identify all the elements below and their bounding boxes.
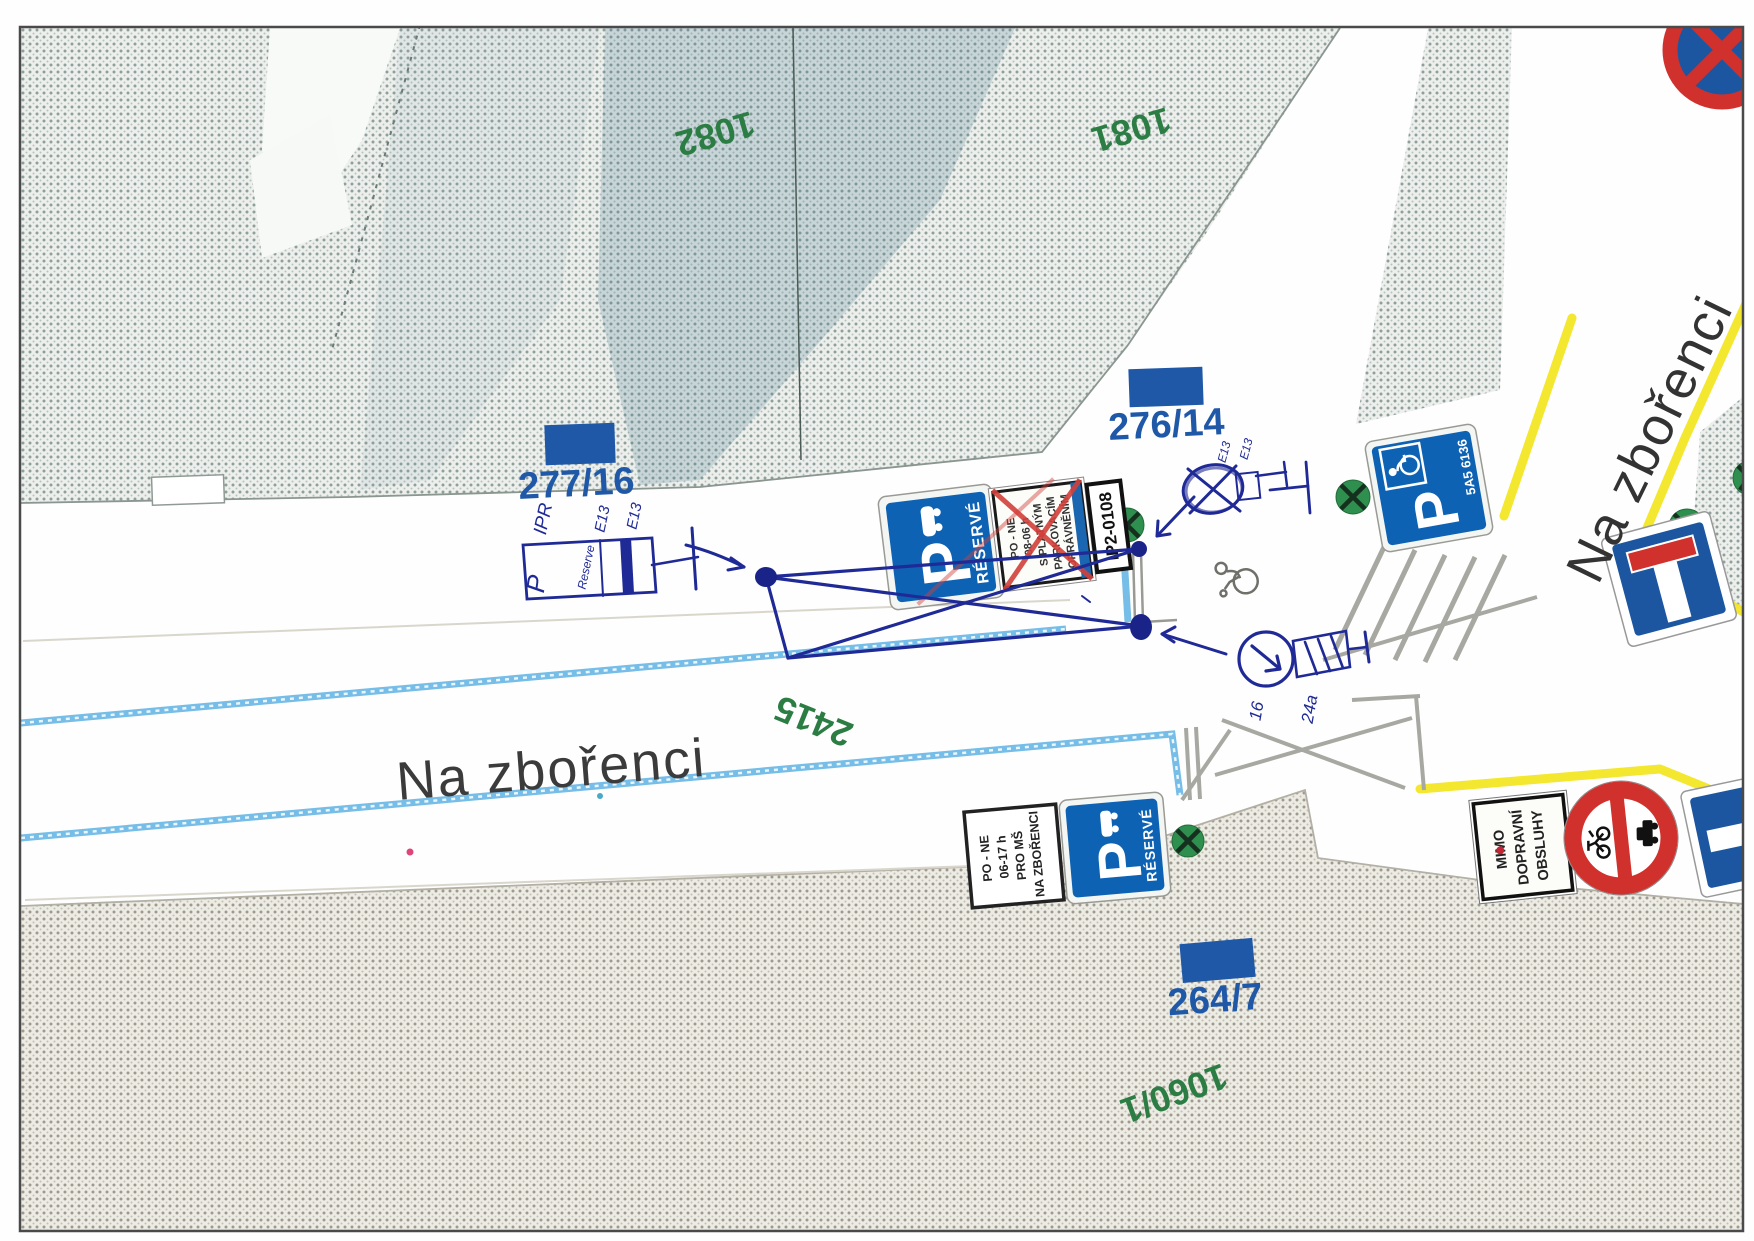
survey-node	[1131, 541, 1147, 557]
blue-scan-dot	[597, 793, 603, 799]
reserve-school-plate: P RÉSERVÉ	[1059, 792, 1172, 905]
building-block	[1128, 367, 1203, 408]
parcel-label-blue: 277/16	[517, 460, 635, 508]
parcel-label-blue: 264/7	[1166, 976, 1264, 1025]
sign-disabled-parking: P 5A5 6136	[1364, 423, 1494, 553]
tree-icon	[1172, 825, 1204, 857]
survey-node	[1130, 614, 1152, 640]
building-block	[544, 423, 615, 465]
reserve-school-panel: PO - NE 06-17 h PRO MŠ NA ZBOŘENCI	[964, 804, 1064, 908]
sign-reserve-school: P RÉSERVÉ PO - NE 06-17 h PRO MŠ NA ZBOŘ…	[964, 792, 1171, 908]
survey-node	[755, 567, 777, 587]
map-canvas: P RÉSERVÉ PO - NE 08-06 h S PLATNÝM PARK…	[0, 0, 1754, 1241]
small-building-outline	[152, 475, 225, 505]
sign-service-only: MIMO DOPRAVNÍ OBSLUHY	[1469, 790, 1577, 904]
tree-icon	[1336, 480, 1370, 514]
parcel-label-blue: 276/14	[1107, 401, 1225, 449]
scanned-map-page: P RÉSERVÉ PO - NE 08-06 h S PLATNÝM PARK…	[0, 0, 1754, 1241]
handwriting-count: 16	[1246, 700, 1268, 722]
pink-scan-dot	[407, 849, 414, 856]
